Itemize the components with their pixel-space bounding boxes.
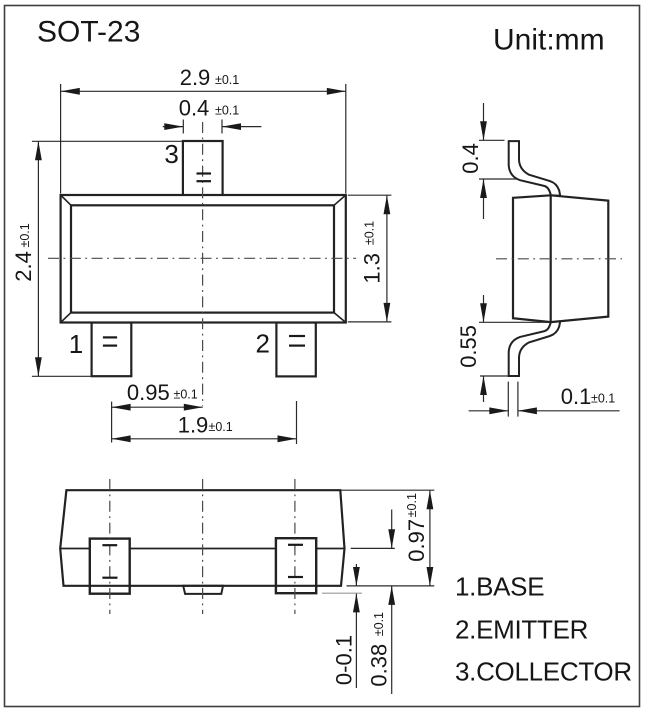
svg-text:±0.1: ±0.1 xyxy=(405,493,419,517)
svg-text:±0.1: ±0.1 xyxy=(209,420,233,434)
svg-text:0.97: 0.97 xyxy=(404,519,429,562)
svg-text:3.COLLECTOR: 3.COLLECTOR xyxy=(455,657,632,687)
svg-text:±0.1: ±0.1 xyxy=(215,73,239,87)
svg-text:0.1: 0.1 xyxy=(561,384,592,409)
svg-text:±0.1: ±0.1 xyxy=(591,392,615,406)
svg-text:Unit:mm: Unit:mm xyxy=(493,24,605,57)
svg-text:1: 1 xyxy=(69,329,83,359)
svg-text:1.3: 1.3 xyxy=(360,253,385,284)
svg-text:0.38: 0.38 xyxy=(366,644,391,687)
svg-text:2: 2 xyxy=(255,328,269,358)
svg-text:±0.1: ±0.1 xyxy=(174,388,198,402)
svg-text:±0.1: ±0.1 xyxy=(215,104,239,118)
svg-text:1.9: 1.9 xyxy=(178,413,209,438)
svg-text:2.EMITTER: 2.EMITTER xyxy=(455,614,588,644)
svg-text:0.4: 0.4 xyxy=(458,143,483,174)
svg-text:2.4: 2.4 xyxy=(11,251,36,282)
svg-text:0.4: 0.4 xyxy=(179,96,210,121)
svg-text:2.9: 2.9 xyxy=(180,65,211,90)
svg-text:0-0.1: 0-0.1 xyxy=(332,635,357,685)
svg-text:0.95: 0.95 xyxy=(127,380,170,405)
svg-text:±0.1: ±0.1 xyxy=(18,223,32,247)
svg-text:3: 3 xyxy=(164,139,178,169)
svg-text:0.55: 0.55 xyxy=(456,325,481,368)
svg-text:1.BASE: 1.BASE xyxy=(455,571,544,601)
svg-text:SOT-23: SOT-23 xyxy=(37,16,140,49)
svg-text:±0.1: ±0.1 xyxy=(363,221,377,245)
svg-text:±0.1: ±0.1 xyxy=(372,612,386,636)
